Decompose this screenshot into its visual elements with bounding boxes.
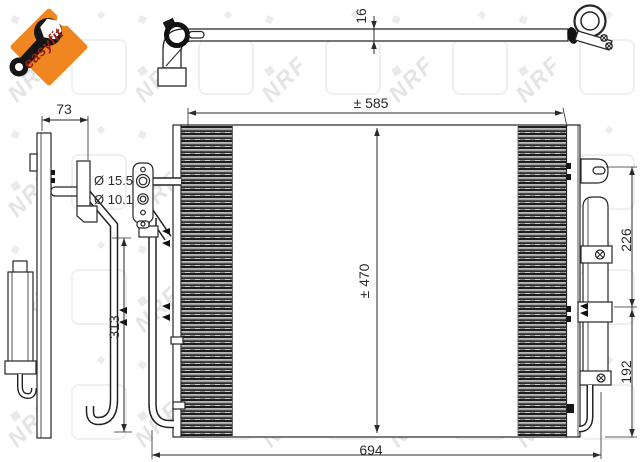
dim-overall-width-label: 694 bbox=[346, 442, 396, 458]
easyfit-logo: easyfit bbox=[2, 2, 97, 97]
dim-core-width-label: ± 585 bbox=[341, 95, 401, 111]
condenser-front-view bbox=[133, 125, 612, 437]
port-small-diameter-label: Ø 10.1 bbox=[94, 192, 133, 207]
dim-upper-span-label: 226 bbox=[618, 223, 634, 257]
dim-side-span-label: 313 bbox=[106, 310, 122, 344]
dim-core-height-label: ± 470 bbox=[356, 257, 372, 305]
dim-mount-offset-label: 73 bbox=[50, 101, 78, 117]
condenser-technical-drawing: NRF bbox=[0, 0, 640, 462]
port-large-diameter-label: Ø 15.5 bbox=[94, 173, 133, 188]
dim-pipe-diameter-label: 16 bbox=[353, 6, 369, 26]
dim-lower-span-label: 192 bbox=[618, 355, 634, 389]
